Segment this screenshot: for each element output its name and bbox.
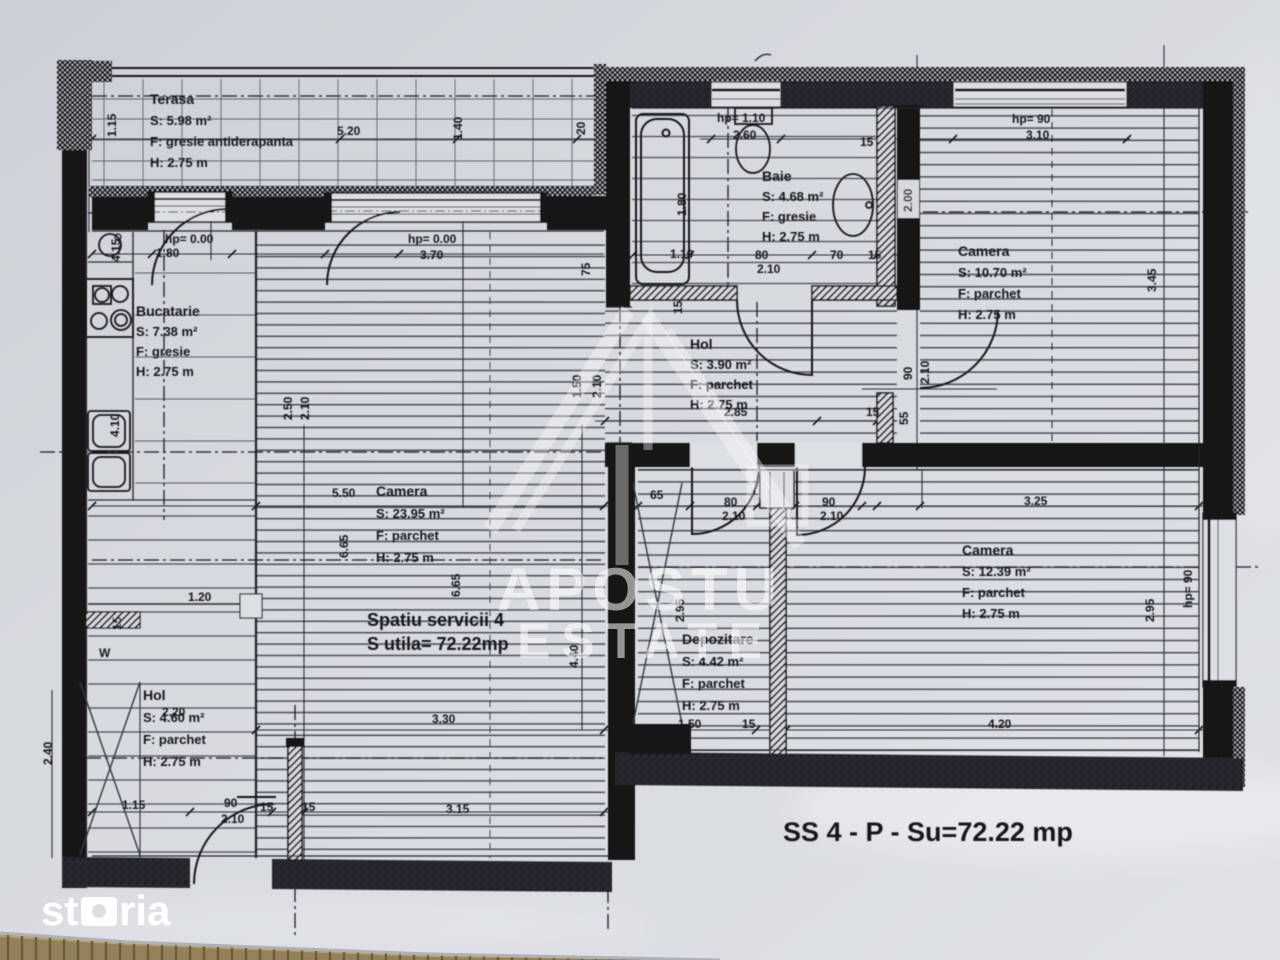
svg-text:80: 80	[755, 248, 769, 262]
svg-text:hp= 90: hp= 90	[1012, 112, 1051, 126]
svg-text:2.10: 2.10	[722, 509, 746, 523]
svg-text:S: 10.70 m²: S: 10.70 m²	[958, 265, 1027, 280]
svg-text:1.40: 1.40	[451, 116, 465, 140]
svg-text:H: 2.75 m: H: 2.75 m	[958, 307, 1016, 322]
svg-text:Camera: Camera	[376, 483, 428, 499]
svg-text:2.00: 2.00	[901, 188, 915, 212]
svg-text:6.65: 6.65	[337, 534, 351, 558]
svg-text:Baie: Baie	[762, 168, 792, 184]
svg-text:1.80: 1.80	[156, 246, 180, 260]
svg-text:15: 15	[260, 800, 274, 814]
svg-text:Hol: Hol	[143, 687, 166, 703]
svg-text:2.10: 2.10	[820, 509, 844, 523]
svg-text:ESTATE: ESTATE	[517, 613, 773, 669]
svg-text:H: 2.75 m: H: 2.75 m	[150, 155, 208, 170]
svg-text:S utila= 72.22mp: S utila= 72.22mp	[367, 634, 509, 654]
svg-text:Bucatarie: Bucatarie	[136, 303, 200, 319]
svg-text:2.10: 2.10	[918, 360, 932, 384]
svg-text:2.50: 2.50	[281, 396, 295, 420]
svg-text:90: 90	[901, 366, 915, 380]
svg-text:15: 15	[742, 717, 756, 731]
svg-text:2.95: 2.95	[1143, 598, 1157, 622]
svg-text:F: parchet: F: parchet	[962, 585, 1026, 600]
svg-text:3.25: 3.25	[1024, 494, 1048, 508]
svg-text:3.10: 3.10	[1026, 128, 1050, 142]
svg-text:hp= 90: hp= 90	[1181, 569, 1195, 608]
svg-text:3.15: 3.15	[446, 802, 470, 816]
svg-text:S: 23.95 m²: S: 23.95 m²	[376, 506, 445, 521]
svg-text:1.15: 1.15	[122, 798, 146, 812]
svg-text:3.30: 3.30	[432, 712, 456, 726]
svg-text:20: 20	[574, 121, 588, 135]
svg-text:3.70: 3.70	[420, 248, 444, 262]
svg-text:90: 90	[822, 495, 836, 509]
svg-text:F: parchet: F: parchet	[958, 286, 1022, 301]
svg-text:15: 15	[110, 616, 124, 630]
svg-text:H: 2.75 m: H: 2.75 m	[682, 698, 740, 713]
svg-text:2.40: 2.40	[41, 741, 55, 765]
svg-text:H: 2.75 m: H: 2.75 m	[143, 754, 201, 769]
svg-text:4.20: 4.20	[988, 717, 1012, 731]
svg-text:ria: ria	[119, 887, 171, 934]
svg-text:70: 70	[830, 248, 844, 262]
svg-text:Terasa: Terasa	[150, 91, 194, 107]
svg-text:2.20: 2.20	[162, 705, 186, 719]
svg-text:55: 55	[897, 411, 911, 425]
svg-text:Spatiu servicii 4: Spatiu servicii 4	[367, 610, 504, 630]
svg-text:hp= 1.10: hp= 1.10	[717, 111, 766, 125]
svg-text:F: gresie antiderapanta: F: gresie antiderapanta	[150, 134, 294, 149]
svg-text:65: 65	[650, 488, 664, 502]
svg-text:6.65: 6.65	[449, 573, 463, 597]
svg-text:Camera: Camera	[962, 542, 1014, 558]
svg-text:4.10: 4.10	[108, 413, 122, 437]
svg-text:90: 90	[224, 796, 238, 810]
svg-text:H: 2.75 m: H: 2.75 m	[962, 606, 1020, 621]
svg-text:S: 7.38 m²: S: 7.38 m²	[136, 324, 198, 339]
svg-text:15: 15	[860, 135, 874, 149]
svg-text:1.15: 1.15	[105, 113, 119, 137]
svg-text:F: gresie: F: gresie	[136, 344, 190, 359]
svg-text:SS 4 - P - Su=72.22 mp: SS 4 - P - Su=72.22 mp	[783, 817, 1073, 847]
svg-text:S: 4.68 m²: S: 4.68 m²	[762, 189, 824, 204]
svg-text:80: 80	[724, 495, 738, 509]
svg-text:H: 2.75 m: H: 2.75 m	[136, 364, 194, 379]
svg-text:hp= 0.00: hp= 0.00	[165, 232, 214, 246]
svg-text:F: gresie: F: gresie	[762, 209, 816, 224]
svg-text:S: 12.39 m²: S: 12.39 m²	[962, 564, 1031, 579]
svg-text:15: 15	[866, 405, 880, 419]
svg-text:2.10: 2.10	[298, 396, 312, 420]
svg-text:15: 15	[671, 300, 685, 314]
svg-text:15: 15	[868, 248, 882, 262]
svg-text:F: parchet: F: parchet	[376, 528, 440, 543]
svg-text:2.60: 2.60	[733, 128, 757, 142]
svg-text:3.45: 3.45	[1145, 268, 1159, 292]
svg-text:hp= 0.00: hp= 0.00	[408, 232, 457, 246]
svg-text:F: parchet: F: parchet	[143, 732, 207, 747]
svg-text:2.10: 2.10	[757, 262, 781, 276]
svg-text:5.50: 5.50	[332, 486, 356, 500]
svg-text:1.80: 1.80	[675, 192, 689, 216]
svg-text:Camera: Camera	[958, 243, 1010, 259]
svg-text:1.20: 1.20	[188, 590, 212, 604]
svg-text:75: 75	[579, 262, 593, 276]
svg-text:4.15: 4.15	[109, 238, 123, 262]
svg-text:H: 2.75 m: H: 2.75 m	[762, 229, 820, 244]
svg-text:H: 2.75 m: H: 2.75 m	[376, 550, 434, 565]
svg-text:1.10: 1.10	[670, 247, 694, 261]
svg-text:W: W	[99, 646, 111, 660]
svg-text:2.10: 2.10	[221, 812, 245, 826]
svg-text:Hol: Hol	[690, 336, 713, 352]
svg-text:F: parchet: F: parchet	[682, 676, 746, 691]
svg-text:st: st	[41, 887, 78, 934]
svg-text:5.20: 5.20	[337, 124, 361, 138]
svg-text:15: 15	[302, 800, 316, 814]
svg-text:S: 5.98 m²: S: 5.98 m²	[150, 113, 212, 128]
svg-text:1.50: 1.50	[678, 717, 702, 731]
